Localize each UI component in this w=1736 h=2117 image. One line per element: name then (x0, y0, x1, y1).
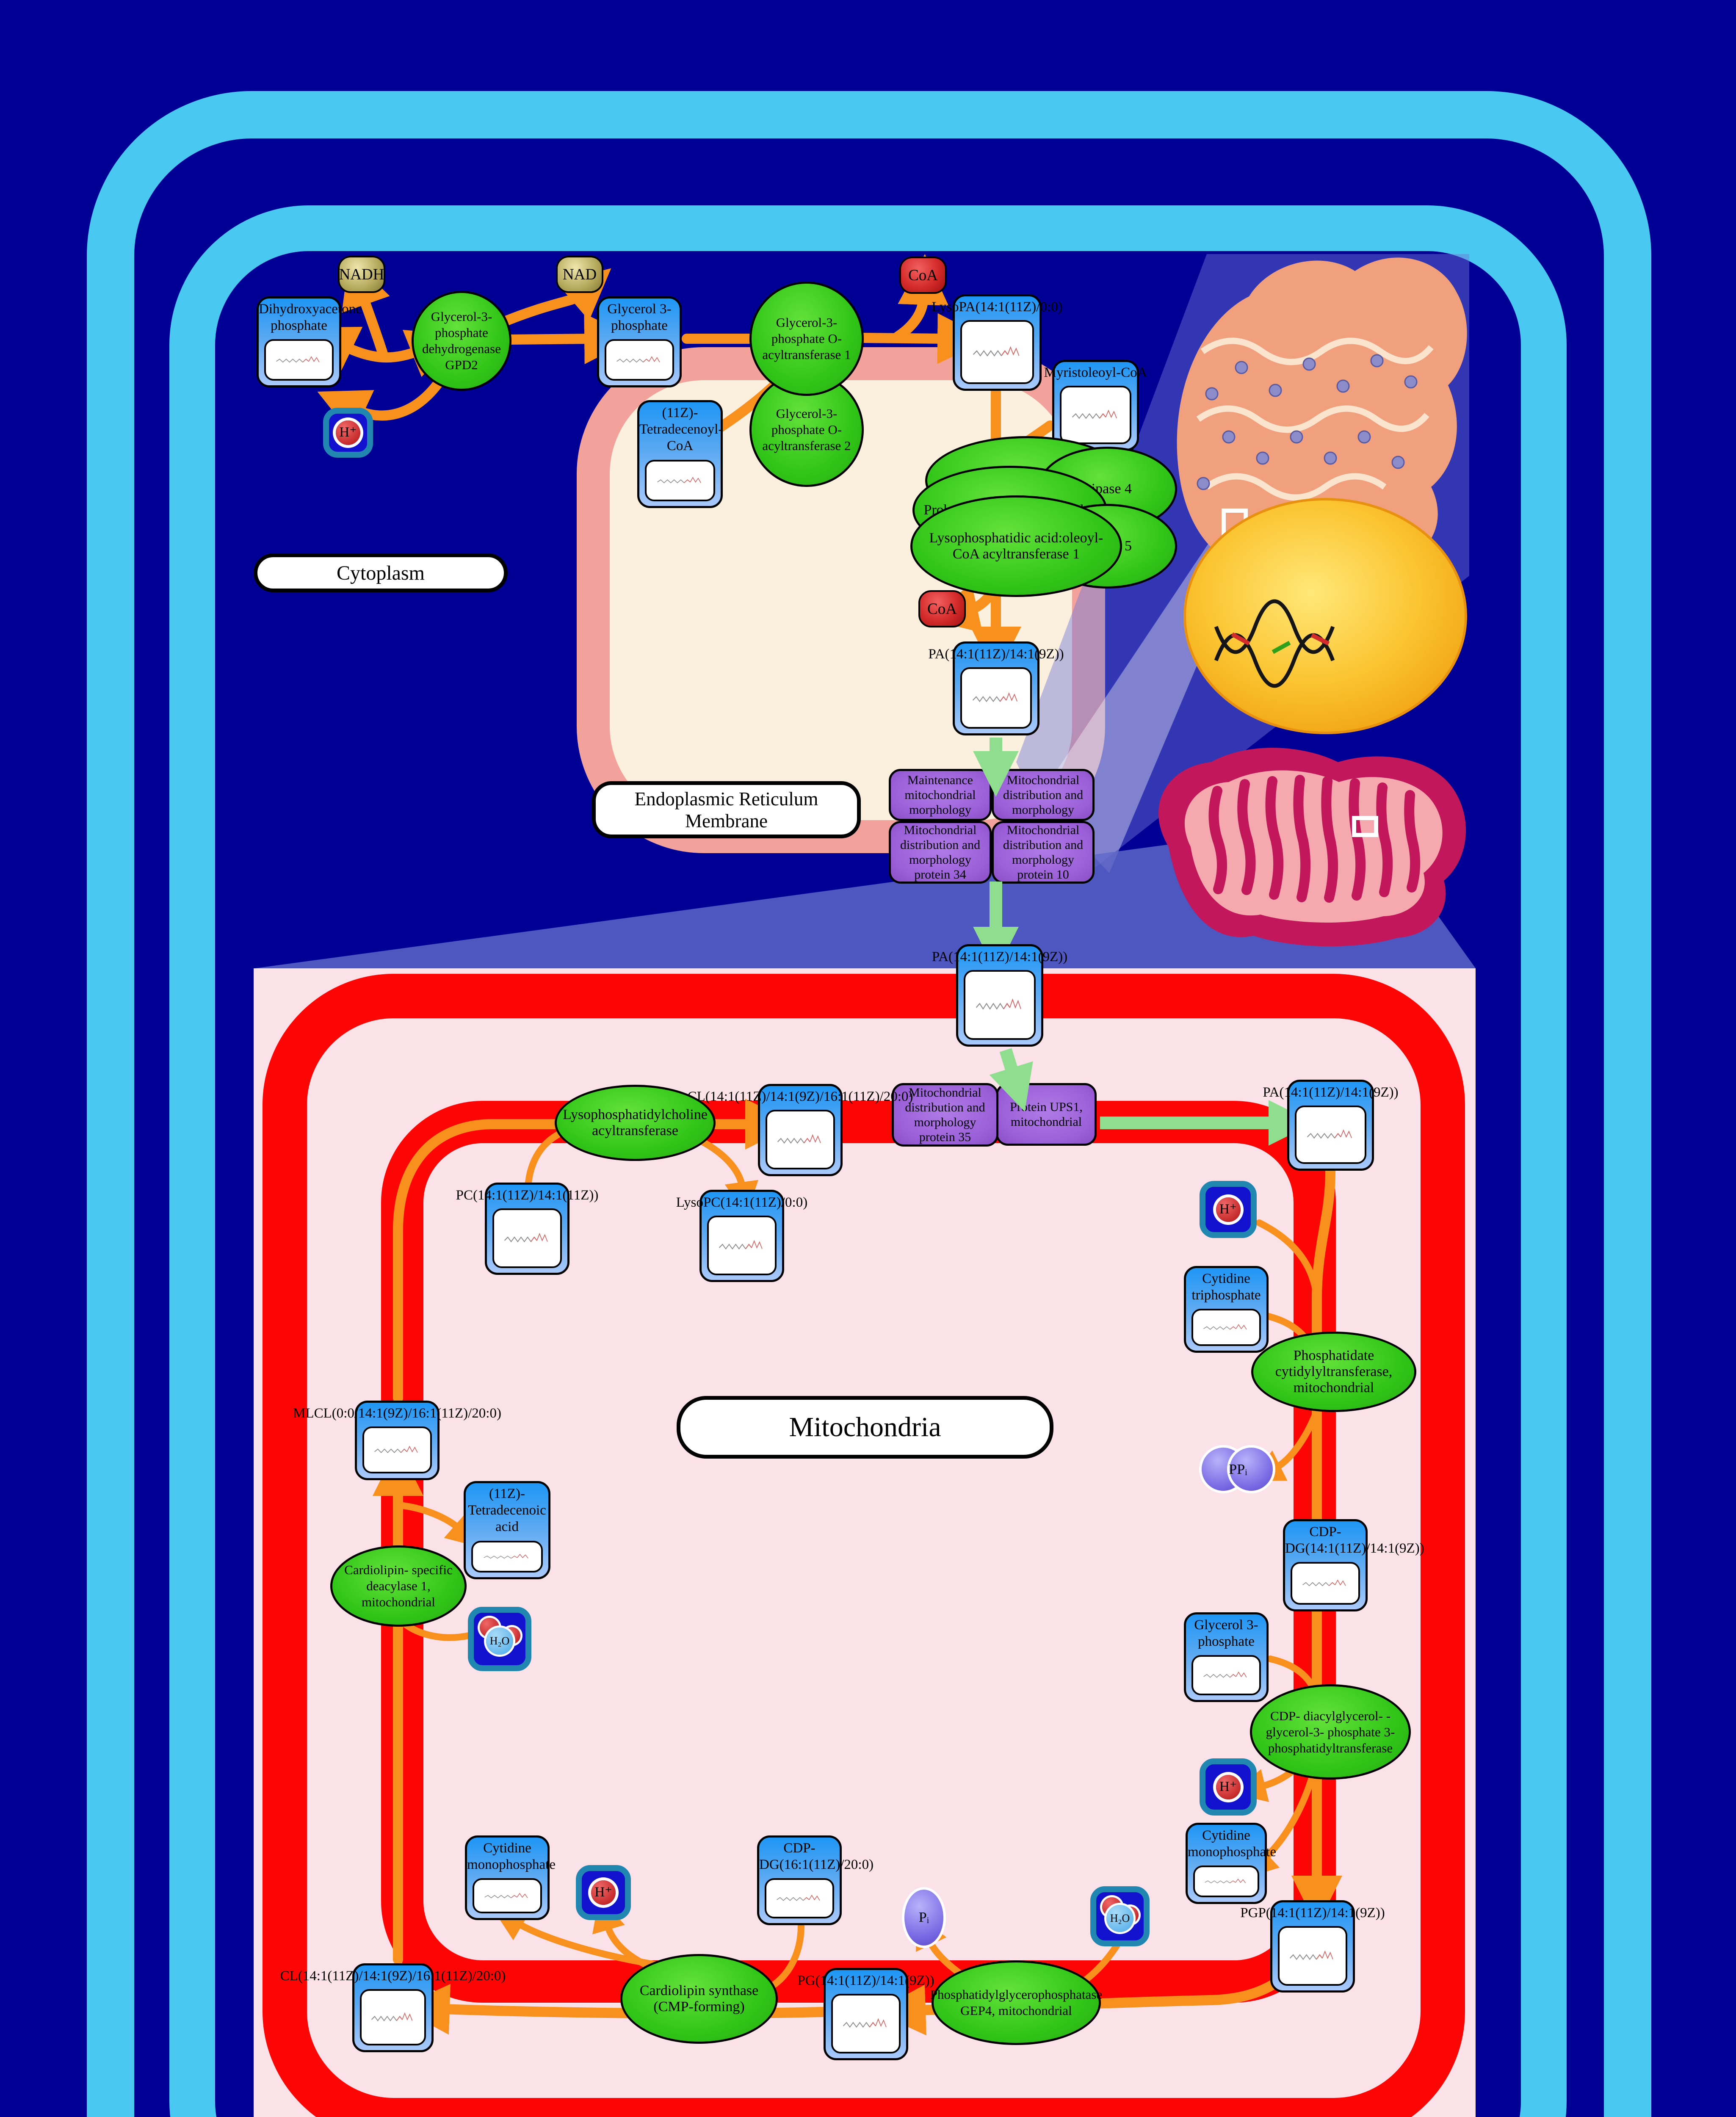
cytoplasm-label-text: Cytoplasm (337, 561, 425, 585)
mitochondria-label: Mitochondria (677, 1396, 1053, 1459)
er-label-text: Endoplasmic Reticulum Membrane (596, 788, 857, 832)
pathway-canvas: Maintenance mitochondrial morphologyMito… (0, 0, 1736, 2117)
cytoplasm-label: Cytoplasm (254, 553, 508, 592)
er-label: Endoplasmic Reticulum Membrane (592, 781, 861, 838)
mitochondria-label-text: Mitochondria (789, 1411, 941, 1443)
